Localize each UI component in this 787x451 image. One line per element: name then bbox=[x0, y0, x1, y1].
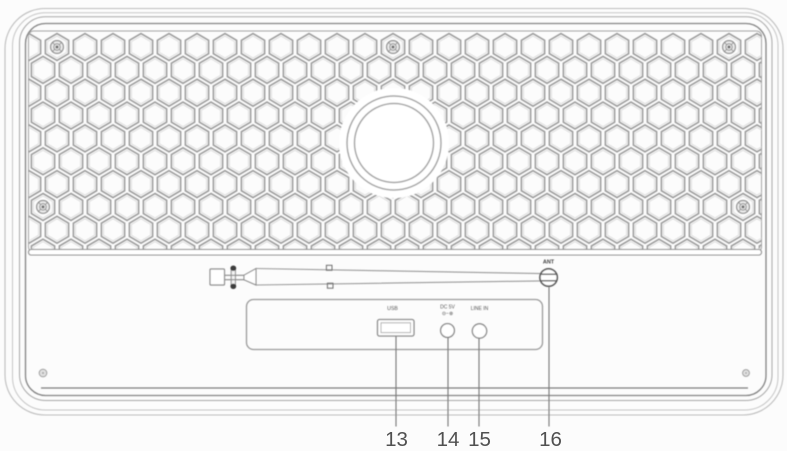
svg-text:ANT: ANT bbox=[543, 260, 555, 266]
svg-text:USB: USB bbox=[387, 306, 398, 312]
svg-text:16: 16 bbox=[539, 428, 562, 451]
svg-text:DC 5V: DC 5V bbox=[440, 305, 455, 311]
svg-text:15: 15 bbox=[468, 428, 491, 451]
svg-text:14: 14 bbox=[437, 428, 460, 451]
svg-text:13: 13 bbox=[385, 428, 408, 451]
svg-text:LINE IN: LINE IN bbox=[471, 306, 489, 312]
svg-text:⊝−⊕: ⊝−⊕ bbox=[442, 311, 453, 317]
